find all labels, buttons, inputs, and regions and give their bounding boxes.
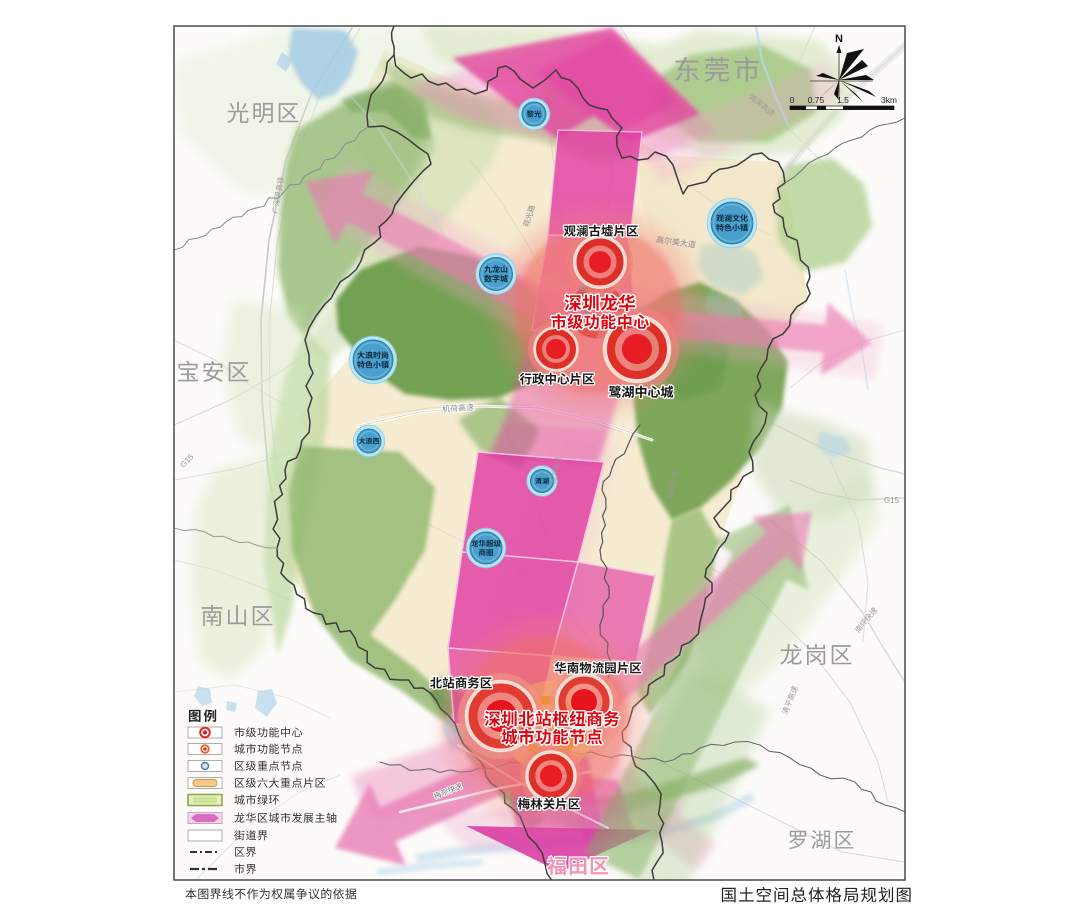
svg-text:N: N [835,33,843,45]
svg-text:3km: 3km [881,95,897,105]
svg-text:0: 0 [790,95,795,105]
svg-text:0.75: 0.75 [808,95,825,105]
svg-text:G15: G15 [884,496,900,505]
svg-text:1.5: 1.5 [837,95,849,105]
